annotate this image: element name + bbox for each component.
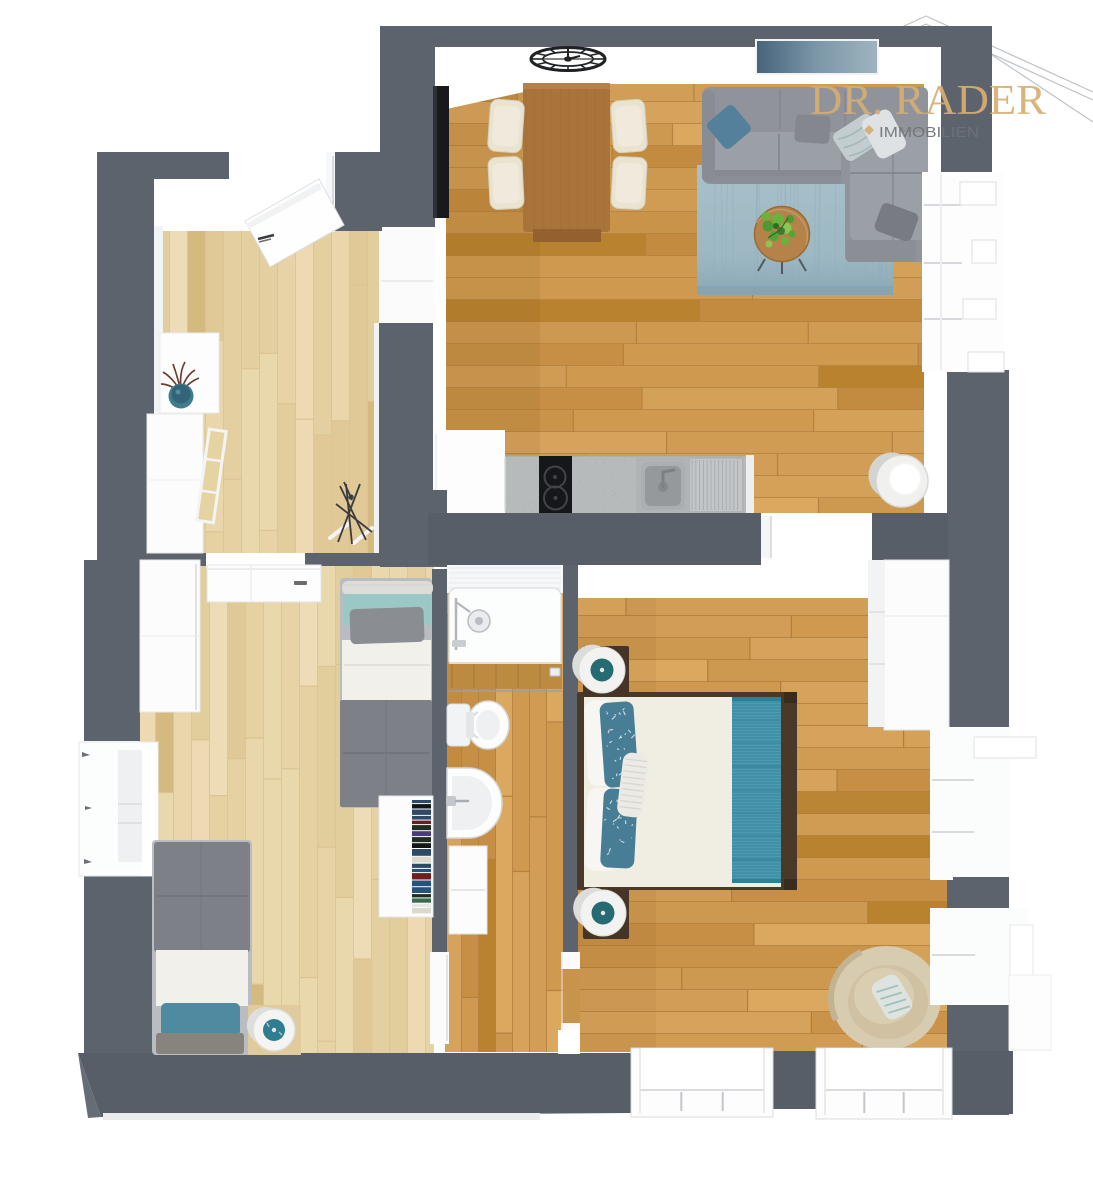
svg-text:IMMOBILIEN: IMMOBILIEN [879, 124, 979, 141]
svg-text:DR. RADER: DR. RADER [810, 78, 1046, 124]
